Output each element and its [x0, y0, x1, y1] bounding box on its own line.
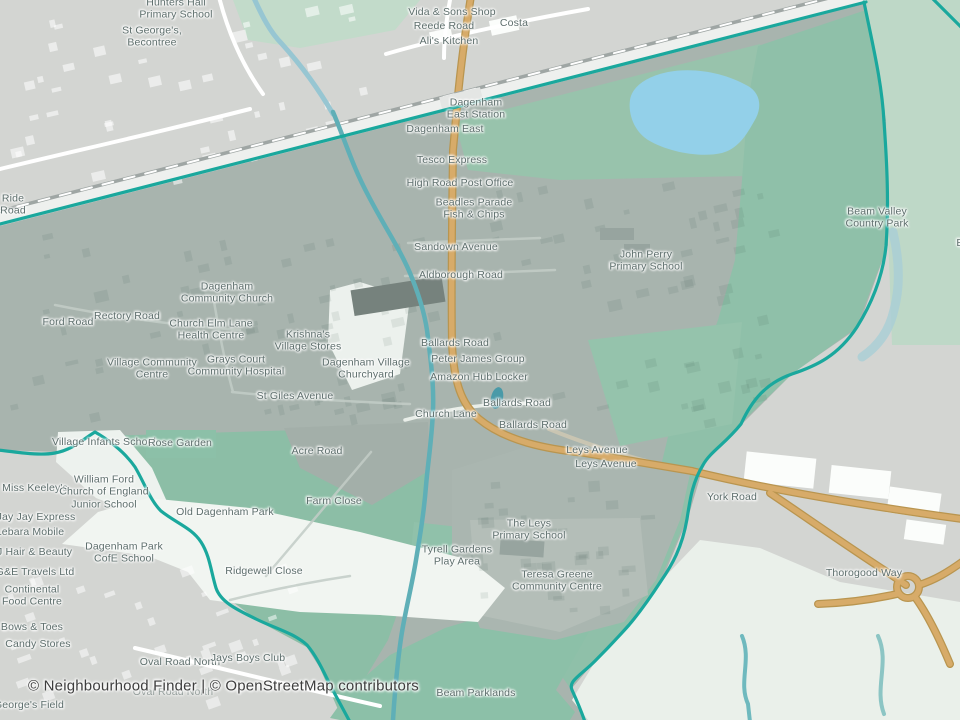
park-rose-garden	[146, 430, 216, 458]
map-attribution: © Neighbourhood Finder | © OpenStreetMap…	[28, 678, 419, 695]
map-tiles-layer	[0, 0, 960, 720]
map-canvas[interactable]: Hunters Hall Primary SchoolSt George's, …	[0, 0, 960, 720]
